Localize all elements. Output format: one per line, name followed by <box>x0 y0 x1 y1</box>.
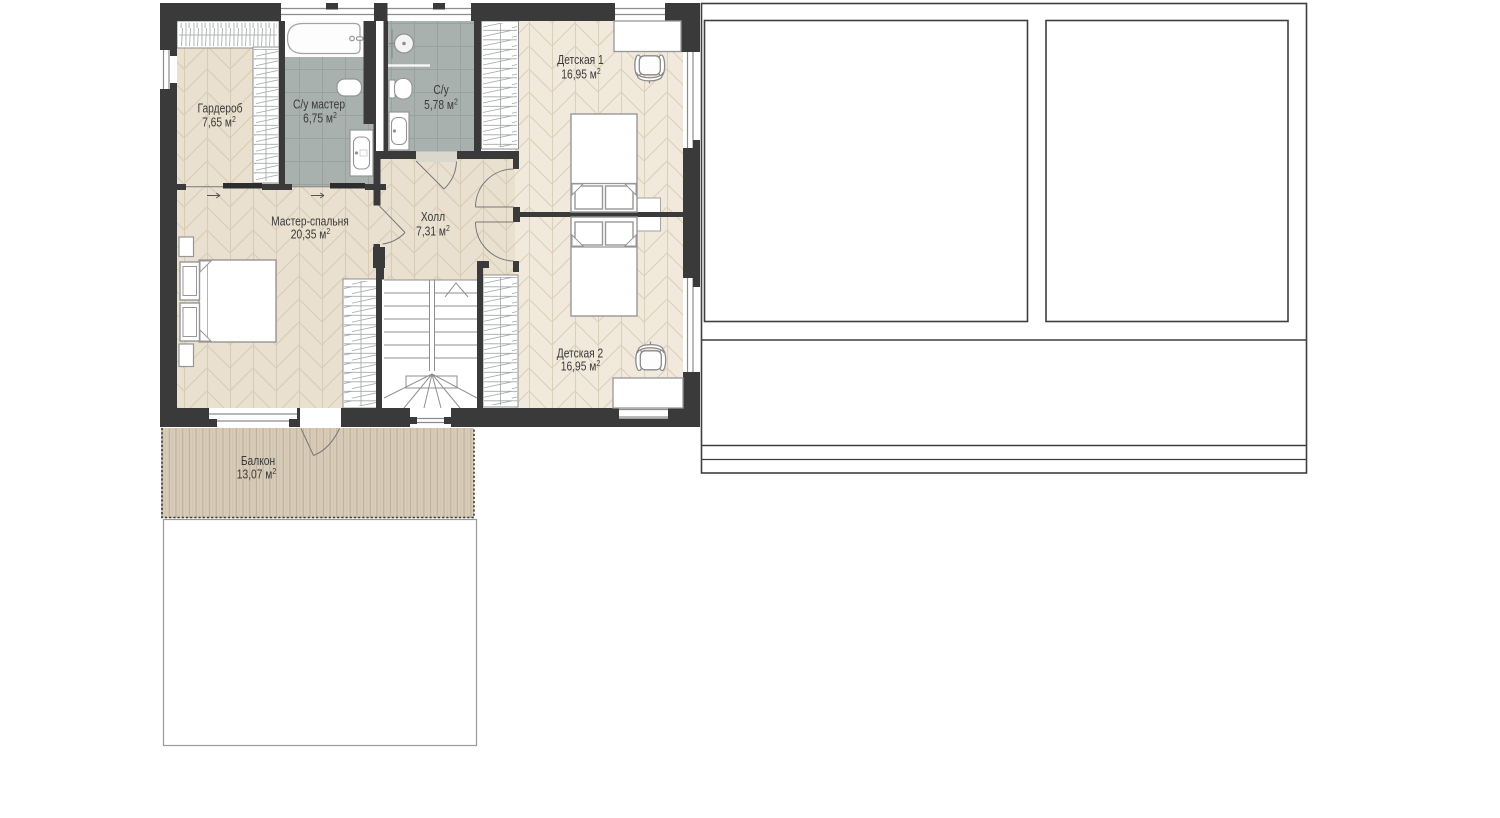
svg-text:20,35 м2: 20,35 м2 <box>291 226 330 241</box>
svg-text:16,95 м2: 16,95 м2 <box>561 358 600 373</box>
svg-text:13,07 м2: 13,07 м2 <box>237 466 276 481</box>
svg-text:Детская 1: Детская 1 <box>557 54 603 67</box>
svg-text:Гардероб: Гардероб <box>197 103 242 116</box>
svg-text:С/у мастер: С/у мастер <box>293 99 345 112</box>
svg-text:5,78 м2: 5,78 м2 <box>424 97 458 112</box>
svg-text:Холл: Холл <box>421 211 445 224</box>
svg-text:С/у: С/у <box>433 84 449 97</box>
svg-text:Мастер-спальня: Мастер-спальня <box>271 216 349 229</box>
svg-text:Балкон: Балкон <box>241 455 275 468</box>
svg-text:6,75 м2: 6,75 м2 <box>303 110 337 125</box>
svg-text:7,65 м2: 7,65 м2 <box>202 114 236 129</box>
svg-text:7,31 м2: 7,31 м2 <box>416 223 450 238</box>
svg-text:16,95 м2: 16,95 м2 <box>561 66 600 81</box>
